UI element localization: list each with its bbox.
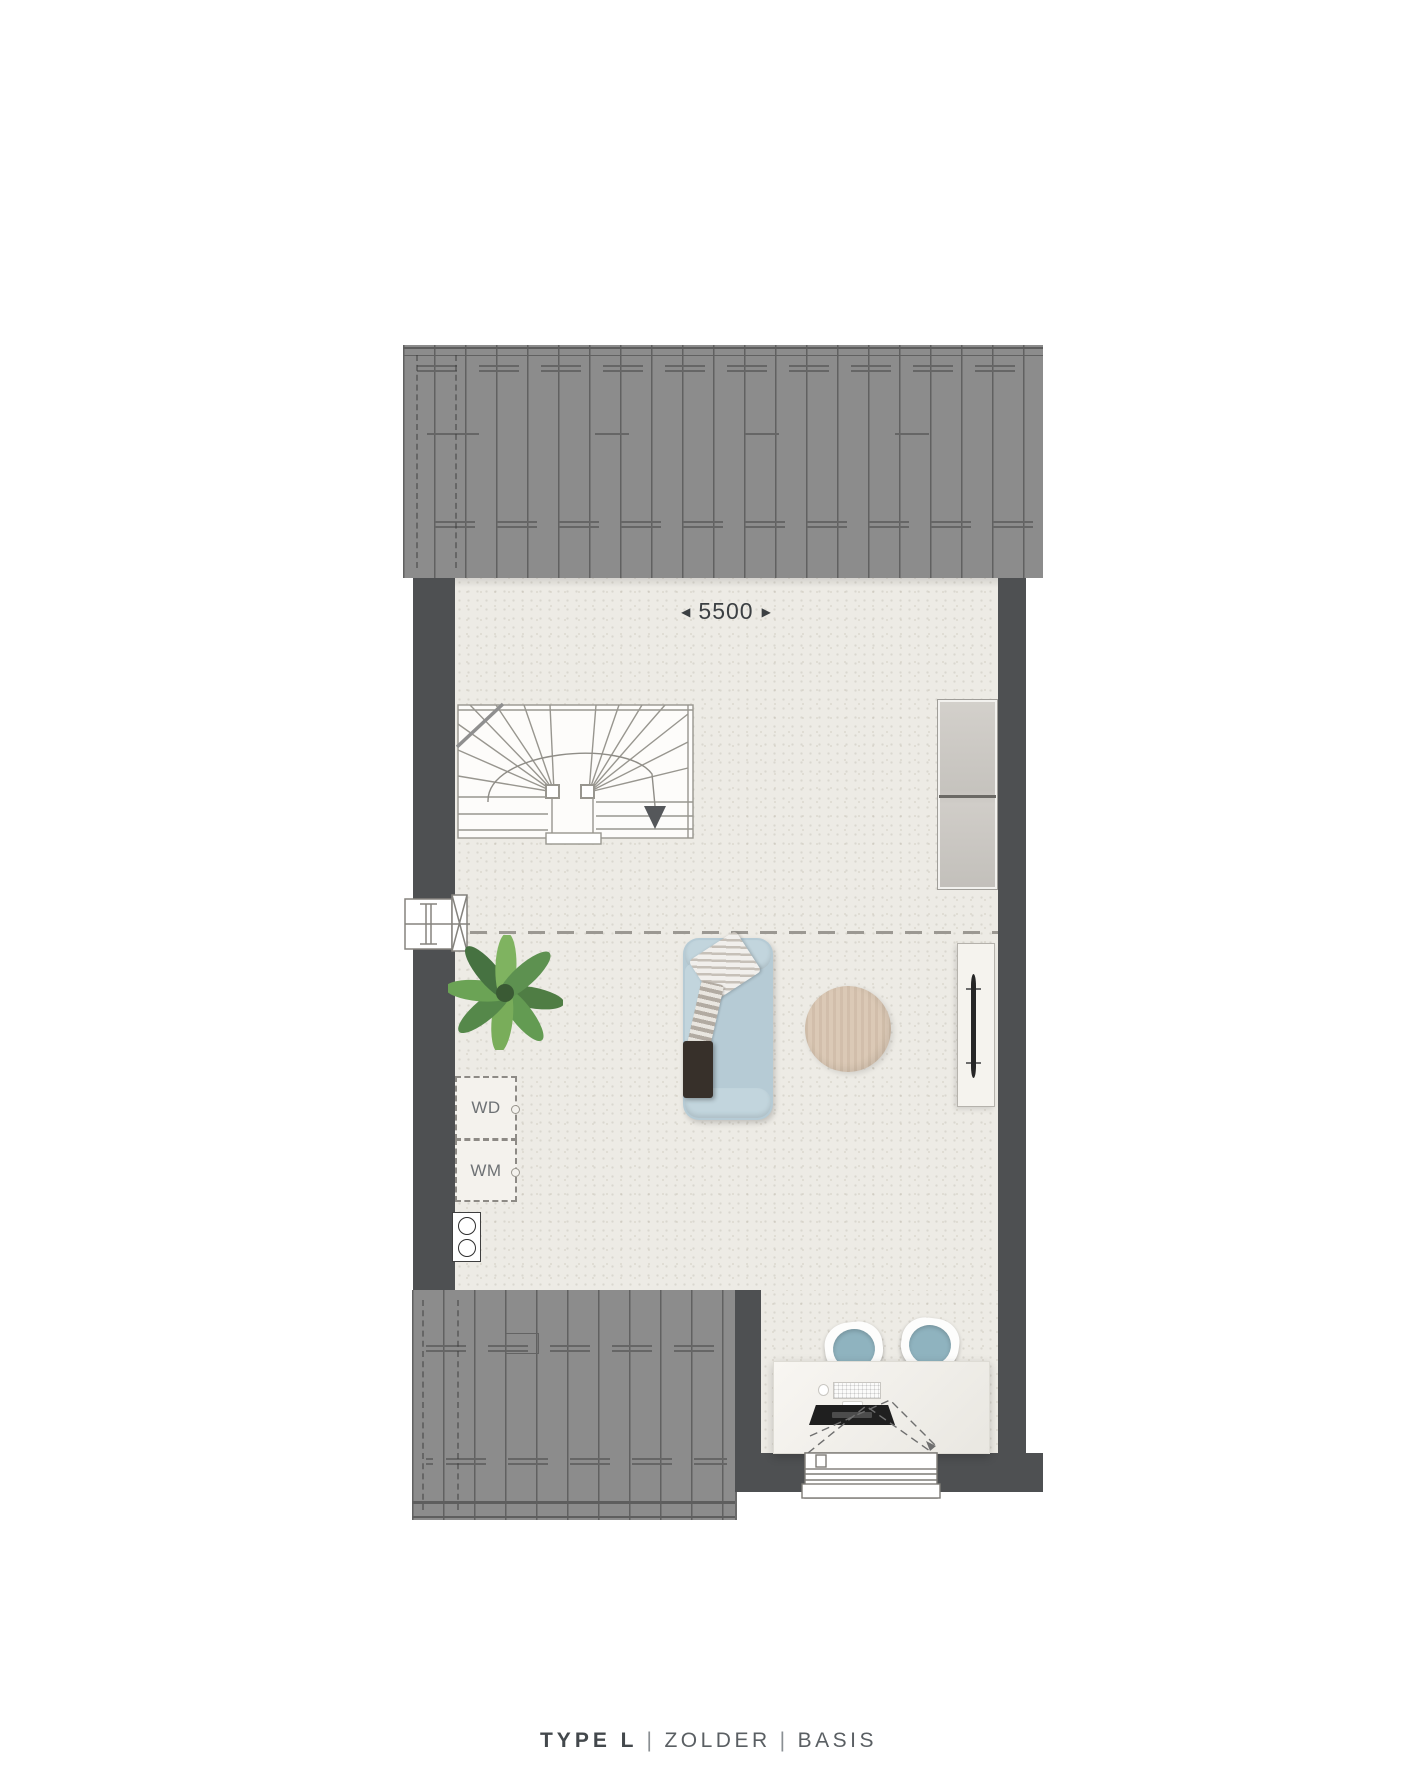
dormer-window [800,1392,945,1504]
wall-right [998,578,1026,1453]
window-opening-lines [808,1400,936,1453]
caption-floor: ZOLDER [664,1729,770,1752]
plant-center [496,984,514,1002]
roof-chimney-detail [505,1333,539,1354]
wardrobe-cabinet [938,700,997,889]
roof-dashed-line [416,355,418,568]
roof-eave-band [412,1501,735,1518]
unit-drum [458,1239,476,1257]
roof-seam [426,1350,727,1352]
dimension-annotation: ◀5500▶ [616,598,836,625]
dryer-position: WD [455,1076,517,1140]
floor-area-main [455,578,998,1290]
roof-dashed-line [457,1300,459,1510]
roof-seam [426,1458,727,1460]
roof-seam [417,521,1035,523]
plan-caption: TYPE L|ZOLDER|BASIS [0,1729,1417,1753]
tv-console [957,943,995,1107]
round-side-table [805,986,891,1072]
unit-drum [458,1217,476,1235]
roof-seam [417,526,1035,528]
sofa-tray [683,1041,713,1098]
wall-bottom-right-segment [937,1453,1043,1492]
caption-type: TYPE L [540,1729,638,1752]
caption-variant: BASIS [798,1729,877,1752]
wall-bottom-vertical [735,1290,761,1492]
sofa [683,938,773,1120]
potted-plant [448,935,563,1050]
wall-bottom-left-segment [761,1453,805,1492]
attic-floor-plan: ◀5500▶ [0,0,1417,1772]
mechanical-ventilation-unit [452,1212,481,1262]
dimension-value: 5500 [690,598,761,624]
cabinet-divider [939,795,996,798]
washer-label: WM [470,1161,501,1181]
roof-seam [426,1345,727,1347]
roof-surface-top [403,345,1043,578]
stair-newel-post [546,785,559,798]
roof-seam [426,1463,727,1465]
roof-surface-bottom [412,1290,737,1520]
washer-position: WM [455,1139,517,1202]
roof-seam [417,370,1035,372]
staircase [456,702,696,847]
dryer-label: WD [471,1098,500,1118]
roof-seam [417,365,1035,367]
stair-newel-post [581,785,594,798]
caption-separator: | [638,1729,665,1752]
tv-screen [971,974,976,1078]
roof-dashed-line [455,355,457,568]
dimension-right-arrow-icon: ▶ [762,605,771,619]
roof-seam [417,433,1035,435]
roof-dashed-line [422,1300,424,1510]
caption-separator: | [771,1729,798,1752]
